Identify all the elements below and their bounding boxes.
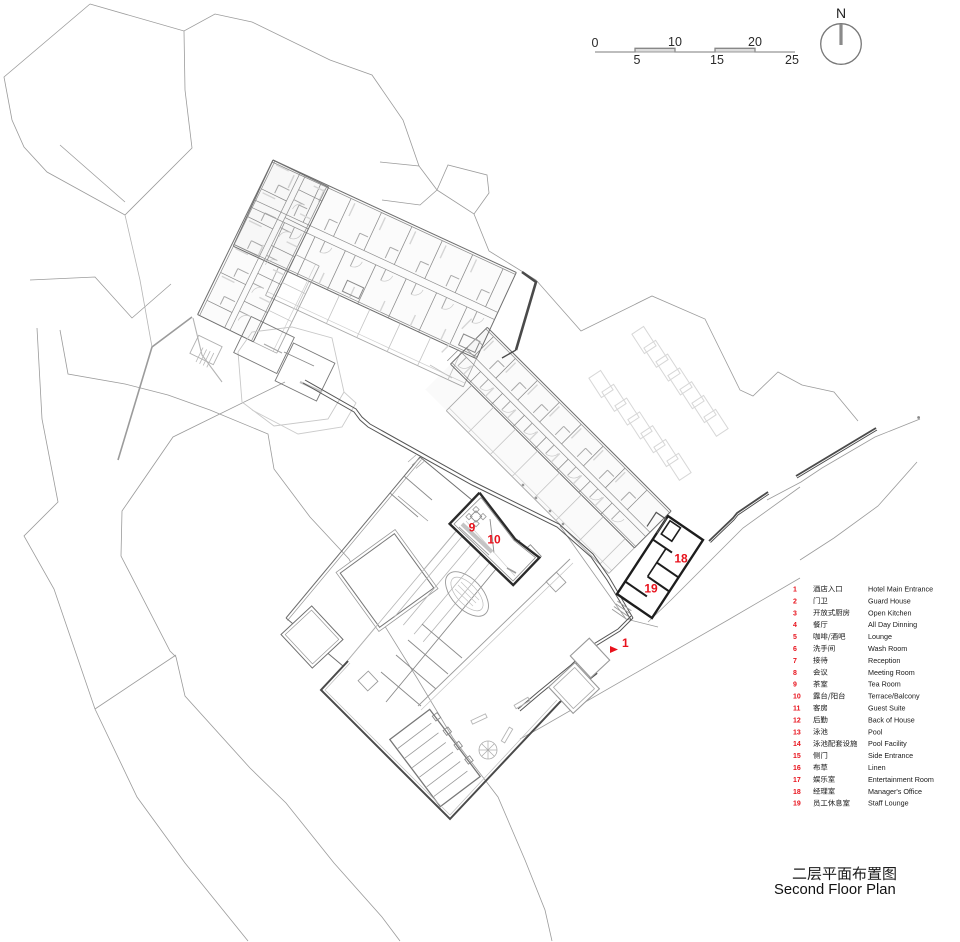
- svg-text:Linen: Linen: [868, 763, 886, 772]
- svg-text:8: 8: [793, 670, 797, 677]
- svg-text:18: 18: [793, 789, 801, 796]
- svg-text:Wash Room: Wash Room: [868, 644, 907, 653]
- svg-text:Meeting Room: Meeting Room: [868, 668, 915, 677]
- svg-text:Second Floor Plan: Second Floor Plan: [774, 882, 896, 898]
- svg-text:15: 15: [710, 53, 724, 67]
- svg-text:16: 16: [793, 765, 801, 772]
- svg-text:10: 10: [668, 35, 682, 49]
- svg-text:Terrace/Balcony: Terrace/Balcony: [868, 692, 920, 701]
- svg-text:Pool Facility: Pool Facility: [868, 739, 907, 748]
- svg-text:Side Entrance: Side Entrance: [868, 751, 913, 760]
- svg-text:Lounge: Lounge: [868, 632, 892, 641]
- svg-text:Entertainment Room: Entertainment Room: [868, 775, 934, 784]
- svg-text:1: 1: [793, 587, 797, 594]
- svg-text:14: 14: [793, 741, 801, 748]
- svg-text:25: 25: [785, 53, 799, 67]
- svg-text:9: 9: [469, 521, 476, 535]
- svg-text:Guard House: Guard House: [868, 596, 911, 605]
- svg-text:19: 19: [644, 582, 658, 596]
- svg-text:Tea Room: Tea Room: [868, 680, 901, 689]
- svg-text:Guest Suite: Guest Suite: [868, 704, 906, 713]
- svg-text:0: 0: [592, 36, 599, 50]
- svg-text:5: 5: [634, 53, 641, 67]
- svg-text:All Day Dinning: All Day Dinning: [868, 620, 917, 629]
- svg-text:Manager's Office: Manager's Office: [868, 787, 922, 796]
- svg-text:19: 19: [793, 801, 801, 808]
- svg-text:Hotel Main Entrance: Hotel Main Entrance: [868, 585, 933, 594]
- svg-text:10: 10: [487, 533, 501, 547]
- svg-text:11: 11: [793, 706, 801, 713]
- svg-text:7: 7: [793, 658, 797, 665]
- svg-text:3: 3: [793, 610, 797, 617]
- svg-text:13: 13: [793, 729, 801, 736]
- svg-text:Pool: Pool: [868, 727, 883, 736]
- svg-text:4: 4: [793, 622, 797, 629]
- svg-text:Open Kitchen: Open Kitchen: [868, 608, 912, 617]
- svg-text:Back of House: Back of House: [868, 715, 915, 724]
- svg-text:Staff Lounge: Staff Lounge: [868, 799, 909, 808]
- svg-text:Reception: Reception: [868, 656, 900, 665]
- svg-text:10: 10: [793, 694, 801, 701]
- svg-text:9: 9: [793, 682, 797, 689]
- svg-text:20: 20: [748, 35, 762, 49]
- svg-text:5: 5: [793, 634, 797, 641]
- svg-text:15: 15: [793, 753, 801, 760]
- svg-text:N: N: [836, 5, 846, 21]
- svg-text:17: 17: [793, 777, 801, 784]
- svg-text:2: 2: [793, 598, 797, 605]
- svg-text:1: 1: [622, 636, 629, 650]
- svg-text:12: 12: [793, 717, 801, 724]
- svg-text:6: 6: [793, 646, 797, 653]
- svg-text:18: 18: [674, 552, 688, 566]
